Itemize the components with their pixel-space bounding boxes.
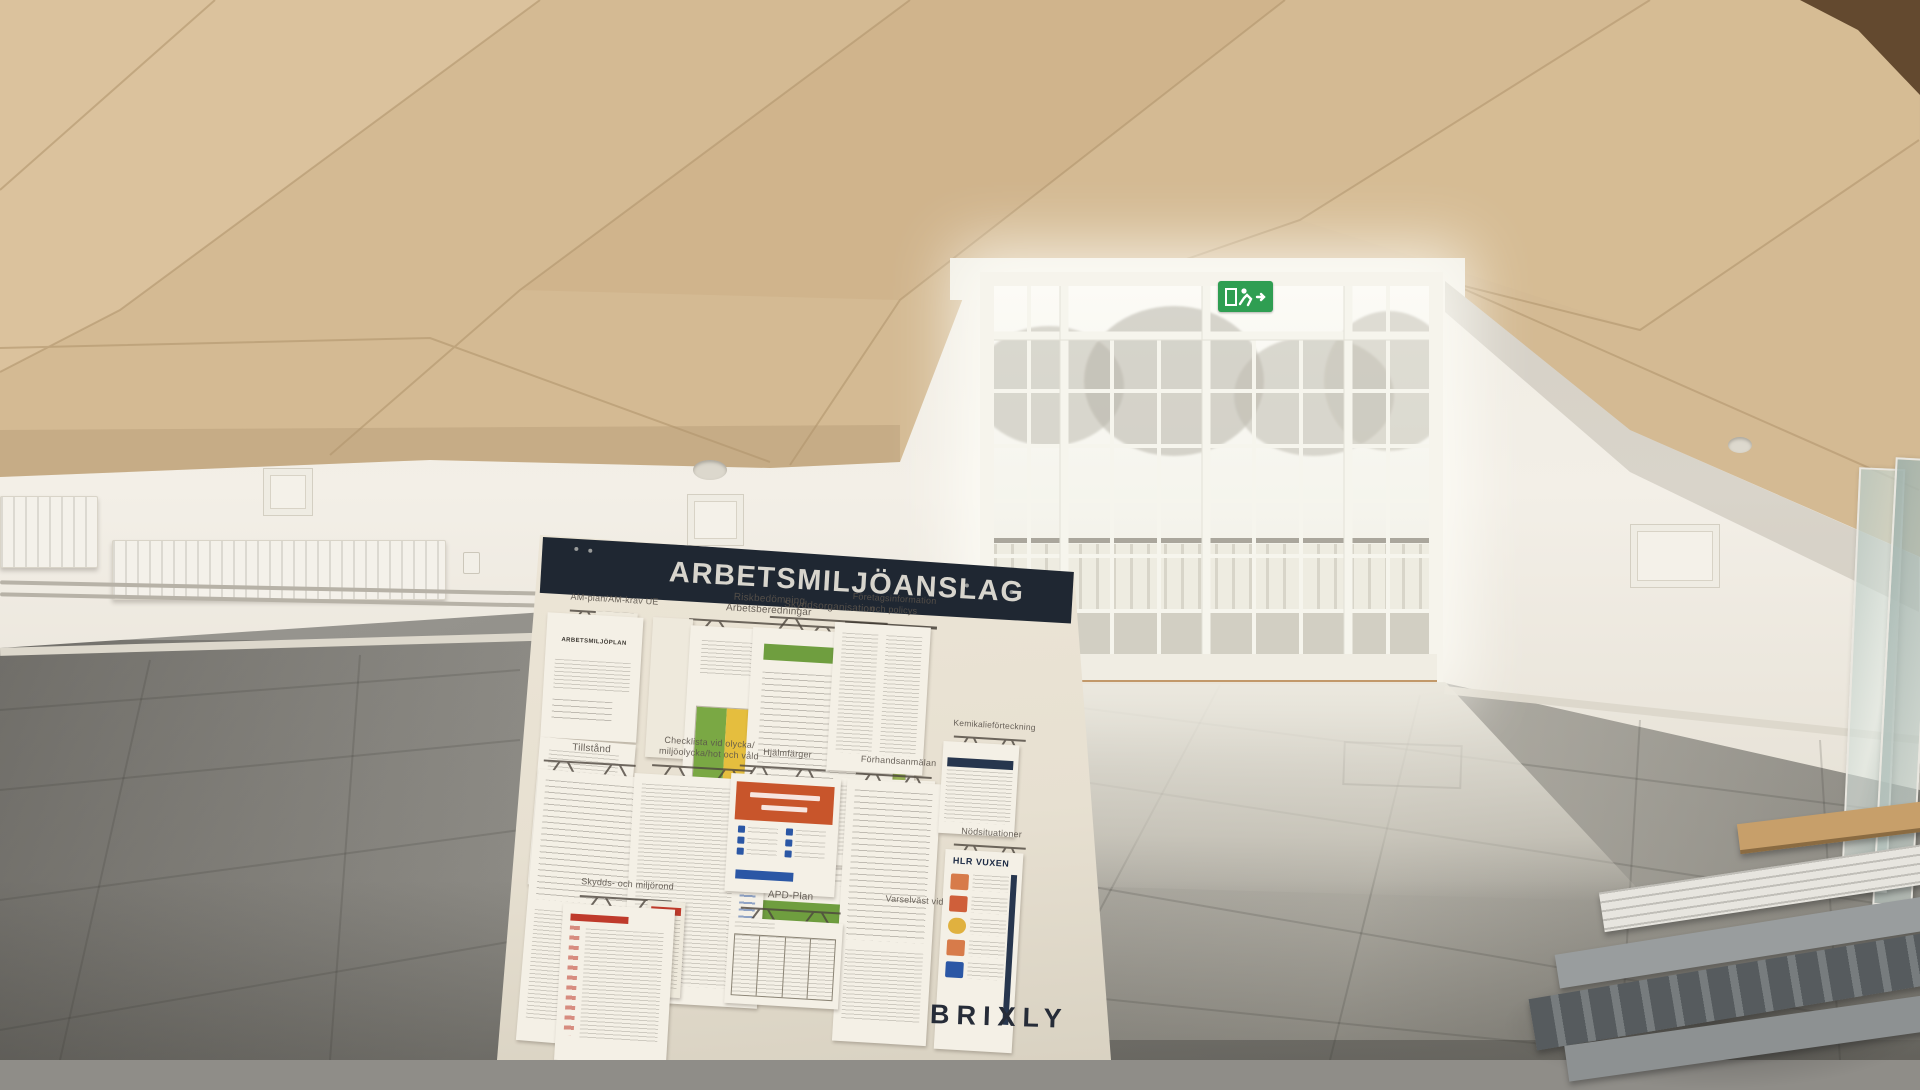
access-hatch-right [1630, 524, 1720, 588]
radiator-far-left [0, 496, 98, 568]
step-text [968, 941, 1005, 959]
pictogram-text [747, 838, 777, 846]
hlr-step-row [949, 895, 1008, 914]
board-section-apd-plan: APD-Plan [729, 887, 861, 937]
step-text [971, 897, 1008, 915]
cpr-illustration-icon [950, 873, 969, 890]
access-hatch-center [687, 494, 744, 546]
step-text [967, 962, 1004, 980]
step-text [972, 875, 1009, 893]
pictogram-row [785, 839, 833, 849]
board-section-kemikalie: Kemikalieförteckning [943, 717, 1055, 763]
speaker-icon [1728, 437, 1752, 453]
pictogram-row [786, 828, 834, 838]
document-text [734, 921, 774, 931]
plan-table [731, 933, 836, 1001]
board-section-foretagsinfo: Företagsinformation och policys [832, 590, 965, 651]
document-text [579, 928, 663, 1042]
blue-banner [735, 869, 793, 881]
safety-pictogram-icon [738, 825, 745, 832]
hlr-step-row [945, 961, 1004, 980]
hlr-step-row [946, 939, 1005, 958]
cpr-illustration-icon [949, 895, 968, 912]
pipe-elbow [463, 552, 480, 574]
pictogram-grid [737, 825, 835, 860]
board-section-hjalmfarger: Hjälmfärger [731, 745, 853, 794]
screw-dot [574, 547, 578, 551]
pictogram-text [795, 840, 825, 848]
plan-cell [757, 936, 786, 997]
signature-lines [551, 699, 612, 725]
plan-cell [807, 939, 835, 1000]
table-header-bar [947, 757, 1013, 770]
blurred-title-line [750, 792, 820, 801]
pictogram-row [784, 850, 832, 860]
pictogram-text [747, 849, 777, 857]
pictogram-row [738, 825, 786, 835]
orange-header [735, 781, 835, 825]
notice-board: ARBETSMILJÖANSLAG AM-plan/AM-krav UE ARB… [497, 535, 1111, 1060]
step-text [970, 919, 1007, 937]
pictogram-text [796, 829, 826, 837]
scene-photo: ARBETSMILJÖANSLAG AM-plan/AM-krav UE ARB… [0, 0, 1920, 1060]
screw-dot [588, 549, 592, 553]
red-tick-column [563, 926, 580, 1036]
document-apd-plan [724, 917, 843, 1010]
pictogram-text [794, 851, 824, 859]
safety-pictogram-icon [737, 847, 744, 854]
document-arbetsmiljoplan: ARBETSMILJÖPLAN [540, 612, 643, 742]
plan-cell [732, 934, 761, 995]
hlr-steps [945, 873, 1009, 980]
pictogram-row [737, 836, 785, 846]
document-text [879, 635, 922, 757]
blurred-title-line [761, 805, 807, 813]
brand-logo: BRIXLY [930, 999, 1101, 1036]
speaker-icon [693, 460, 727, 480]
exit-sign-icon [1218, 281, 1273, 312]
cpr-illustration-icon [948, 917, 967, 934]
safety-pictogram-icon [786, 828, 793, 835]
board-section-skyddsrond: Skydds- och miljörond [561, 875, 703, 925]
cpr-illustration-icon [946, 939, 965, 956]
access-hatch-left [263, 468, 313, 516]
safety-pictogram-icon [785, 839, 792, 846]
red-header [570, 914, 628, 924]
table-rows [944, 769, 1013, 825]
document-orange-notice [724, 773, 841, 897]
document-kemikalie [938, 741, 1019, 837]
running-man-icon [1224, 286, 1268, 308]
hlr-step-row [948, 917, 1007, 936]
form-rows [841, 949, 923, 1024]
document-skyddsrond [554, 903, 675, 1066]
cpr-illustration-icon [945, 961, 964, 978]
plan-cell [782, 937, 811, 998]
safety-pictogram-icon [737, 836, 744, 843]
document-text [835, 633, 878, 755]
hlr-step-row [950, 873, 1009, 892]
pictogram-text [748, 827, 778, 835]
document-text [553, 659, 631, 693]
document-title: ARBETSMILJÖPLAN [546, 636, 642, 648]
hlr-title: HLR VUXEN [953, 855, 1023, 869]
board-section-nodsituationer: Nödsituationer HLR VUXEN [945, 825, 1047, 871]
pictogram-row [737, 847, 785, 857]
safety-pictogram-icon [784, 850, 791, 857]
